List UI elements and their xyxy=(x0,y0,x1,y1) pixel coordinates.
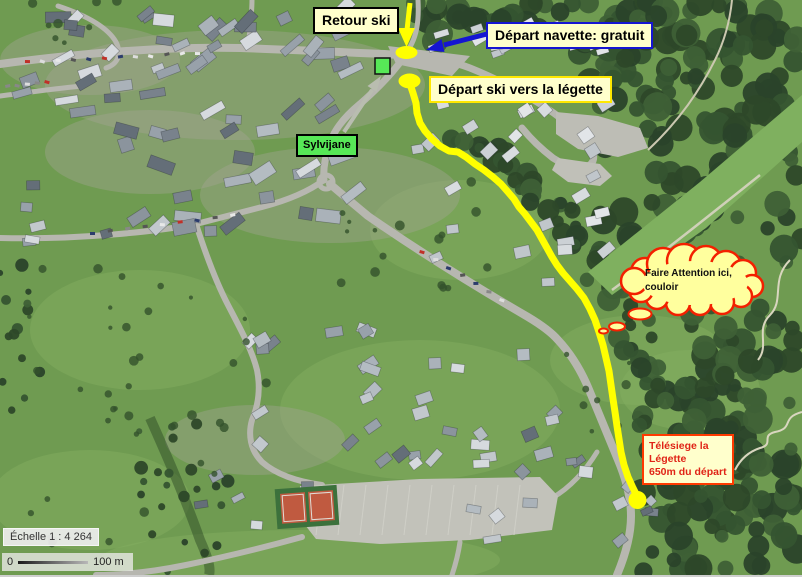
telesiege-label: Télésiege la Légette 650m du départ xyxy=(642,434,734,485)
scalebar: 0 100 m xyxy=(2,553,133,571)
retour-ski-label: Retour ski xyxy=(313,7,399,34)
navette-stop-marker xyxy=(396,46,418,59)
down-arrow-icon xyxy=(407,3,410,30)
chairlift-end-marker xyxy=(629,491,647,509)
sylvijane-marker xyxy=(375,58,390,74)
annotated-map: Retour ski Départ navette: gratuit Dépar… xyxy=(0,0,802,577)
warning-line-2: couloir xyxy=(645,281,732,295)
depart-ski-label: Départ ski vers la légette xyxy=(429,76,612,103)
telesiege-line-1: Télésiege la xyxy=(649,440,727,453)
warning-cloud-text: Faire Attention ici, couloir xyxy=(645,267,732,295)
telesiege-line-2: Légette xyxy=(649,453,727,466)
depart-navette-label: Départ navette: gratuit xyxy=(486,22,653,49)
telesiege-line-3: 650m du départ xyxy=(649,466,727,479)
ski-depart-marker xyxy=(399,74,421,89)
scalebar-line xyxy=(18,561,88,564)
warning-line-1: Faire Attention ici, xyxy=(645,267,732,281)
scale-text: Échelle 1 : 4 264 xyxy=(3,528,99,546)
scalebar-zero: 0 xyxy=(7,556,13,568)
scalebar-distance: 100 m xyxy=(93,556,124,568)
sylvijane-label: Sylvijane xyxy=(296,134,358,157)
